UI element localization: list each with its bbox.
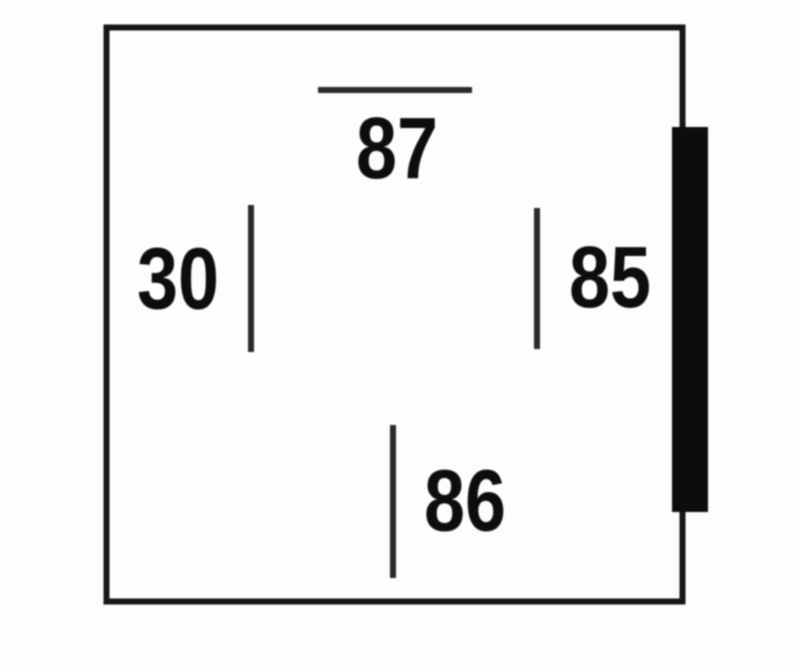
svg-text:85: 85 [569, 229, 651, 326]
svg-text:86: 86 [424, 453, 506, 550]
svg-text:87: 87 [356, 100, 438, 197]
svg-text:30: 30 [137, 231, 219, 328]
